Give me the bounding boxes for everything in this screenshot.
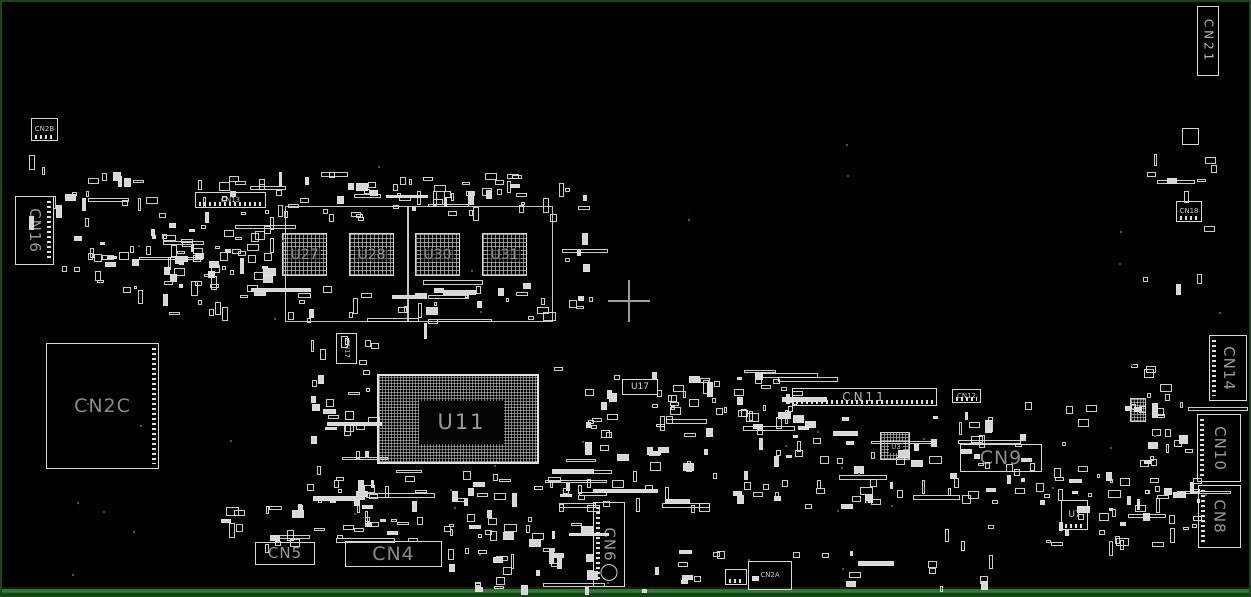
component-CN18[interactable]: CN18: [1176, 201, 1202, 222]
via-dot: [1120, 231, 1122, 233]
small-part: [842, 417, 849, 421]
small-part: [240, 295, 248, 298]
small-part: [833, 431, 858, 436]
component-label: CN8: [1212, 499, 1227, 533]
via-dot: [479, 554, 481, 556]
small-part: [299, 300, 305, 304]
board-edge-highlight: [2, 587, 1249, 595]
small-part: [215, 246, 220, 249]
small-part: [1211, 165, 1217, 173]
small-part: [467, 514, 475, 522]
component-CN14[interactable]: CN14: [1209, 335, 1247, 401]
small-part: [1169, 515, 1175, 524]
small-part: [269, 506, 282, 510]
small-part: [534, 486, 543, 490]
small-part: [193, 248, 203, 254]
small-part: [1192, 524, 1197, 528]
small-part: [587, 570, 594, 576]
small-part: [175, 256, 188, 262]
small-part: [986, 488, 996, 492]
small-part: [443, 290, 476, 295]
small-part: [275, 535, 310, 539]
small-part: [1180, 402, 1183, 408]
small-part: [1143, 277, 1148, 282]
small-part: [713, 473, 717, 479]
via-dot: [77, 502, 79, 504]
small-part: [670, 402, 679, 406]
small-part: [841, 504, 853, 509]
small-part: [576, 306, 584, 309]
small-part: [356, 451, 360, 459]
small-part: [565, 188, 570, 192]
component-CN12[interactable]: CN12: [952, 389, 981, 403]
small-part: [270, 217, 274, 230]
via-dot: [282, 240, 284, 242]
small-part: [476, 286, 481, 294]
small-part: [455, 498, 466, 502]
via-dot: [1154, 435, 1156, 437]
small-part: [744, 471, 748, 480]
small-part: [785, 410, 788, 424]
small-part: [275, 541, 281, 546]
small-part: [1152, 403, 1158, 418]
small-part: [234, 510, 245, 516]
small-part: [229, 523, 235, 538]
small-part: [786, 398, 793, 403]
small-part: [367, 318, 419, 322]
small-part: [29, 155, 35, 170]
small-part: [203, 197, 206, 208]
small-part: [371, 343, 379, 349]
small-part: [348, 183, 354, 190]
component-U31[interactable]: U31: [482, 233, 527, 276]
small-part: [219, 182, 230, 191]
small-part: [193, 255, 201, 262]
small-part: [465, 548, 469, 554]
small-part: [349, 312, 353, 318]
small-part: [1069, 479, 1082, 483]
small-part: [497, 189, 502, 195]
small-part: [358, 480, 364, 493]
pin-row: [1180, 216, 1198, 220]
small-part: [42, 167, 45, 175]
small-part: [583, 195, 587, 201]
via-dot: [138, 245, 140, 247]
small-part: [29, 216, 34, 230]
small-part: [230, 191, 236, 197]
small-part: [463, 471, 471, 480]
small-part: [409, 179, 412, 185]
small-part: [477, 301, 482, 308]
small-part: [543, 198, 549, 213]
small-part: [1148, 442, 1158, 449]
small-part: [318, 375, 324, 384]
component-CN2B[interactable]: CN2B: [31, 118, 58, 141]
small-part: [329, 172, 335, 178]
small-part: [559, 183, 564, 197]
small-part: [837, 458, 843, 464]
small-part: [516, 193, 527, 197]
component-CN2C[interactable]: CN2C: [46, 343, 159, 469]
small-part: [714, 381, 720, 387]
small-part: [169, 312, 180, 315]
small-part: [591, 425, 597, 429]
small-part: [408, 538, 418, 542]
via-dot: [891, 505, 893, 507]
small-part: [311, 436, 317, 444]
small-part: [1058, 489, 1063, 501]
small-part: [507, 181, 511, 193]
small-part: [122, 200, 128, 206]
via-dot: [274, 318, 276, 320]
small-part: [1156, 498, 1160, 513]
small-part: [666, 419, 707, 424]
via-dot: [133, 531, 135, 533]
small-part: [123, 287, 131, 293]
small-part: [134, 286, 137, 289]
small-part: [704, 449, 708, 455]
small-part: [1188, 407, 1248, 411]
component-core: U11: [419, 401, 504, 444]
small-part: [270, 535, 280, 541]
small-part: [230, 270, 234, 275]
small-part: [462, 182, 470, 185]
via-dot: [1119, 263, 1121, 265]
component-U11[interactable]: U11: [377, 374, 539, 464]
small-part: [931, 439, 937, 447]
small-part: [1127, 496, 1131, 505]
small-part: [523, 283, 531, 289]
small-part: [412, 206, 416, 211]
small-part: [582, 233, 588, 245]
small-part: [1109, 508, 1113, 511]
small-part: [221, 519, 231, 523]
small-part: [1150, 478, 1159, 483]
small-part: [1135, 505, 1146, 512]
component-label: CN2C: [74, 397, 131, 416]
small-part: [578, 495, 585, 500]
small-part: [978, 463, 984, 466]
small-part: [86, 191, 89, 197]
small-part: [392, 295, 421, 299]
small-part: [354, 528, 364, 532]
small-part: [1065, 529, 1069, 536]
small-part: [1147, 393, 1151, 398]
small-part: [543, 312, 556, 321]
mounting-hole: [601, 564, 618, 581]
small-part: [958, 440, 1021, 444]
small-part: [265, 544, 269, 553]
board-canvas[interactable]: CN21CN2BCN16CN13CN2CCN17U27U28U30U31U11U…: [0, 0, 1251, 597]
small-part: [468, 191, 474, 205]
small-part: [265, 210, 269, 214]
small-part: [724, 407, 727, 413]
small-part: [72, 192, 77, 196]
small-part: [682, 575, 693, 580]
small-part: [647, 447, 653, 455]
small-part: [792, 391, 803, 396]
small-part: [797, 441, 801, 452]
small-part: [1110, 479, 1113, 483]
small-part: [1086, 405, 1097, 412]
small-part: [1099, 513, 1109, 521]
small-part: [752, 576, 759, 581]
small-part: [251, 233, 259, 242]
small-part: [1072, 491, 1078, 494]
component-label: CN2A: [760, 572, 779, 579]
small-part: [988, 525, 994, 529]
component-label: U11: [437, 412, 485, 433]
small-part: [309, 309, 314, 318]
small-part: [132, 259, 139, 266]
small-part: [1184, 191, 1189, 203]
small-part: [1205, 157, 1216, 164]
small-part: [1030, 463, 1035, 471]
small-part: [1165, 394, 1170, 401]
small-part: [88, 253, 93, 260]
small-part: [482, 188, 492, 196]
small-part: [1078, 514, 1084, 520]
component-U17[interactable]: U17: [622, 379, 658, 395]
component-CN5[interactable]: CN5: [255, 542, 315, 565]
small-part: [418, 303, 422, 318]
small-part: [270, 238, 274, 253]
small-part: [526, 525, 530, 533]
small-part: [1143, 513, 1150, 521]
small-part: [198, 180, 202, 190]
small-part: [365, 517, 370, 522]
crosshair-cursor-v: [628, 280, 630, 322]
small-part: [559, 503, 596, 508]
component-conn-small-1: [725, 569, 747, 585]
small-part: [222, 307, 228, 321]
small-part: [475, 587, 483, 592]
component-U27[interactable]: U27: [282, 233, 327, 276]
small-part: [1197, 274, 1202, 284]
small-part: [235, 225, 296, 229]
small-part: [198, 300, 202, 305]
small-part: [504, 524, 517, 532]
small-part: [980, 576, 988, 584]
small-part: [124, 178, 131, 187]
component-CN16[interactable]: CN16: [15, 196, 54, 265]
small-part: [528, 316, 534, 320]
small-part: [1183, 527, 1189, 530]
small-part: [1036, 483, 1044, 492]
small-part: [614, 375, 620, 380]
via-dot: [103, 511, 105, 513]
small-part: [434, 302, 437, 306]
small-part: [581, 526, 593, 534]
small-part: [778, 377, 838, 382]
small-part: [684, 433, 696, 437]
small-part: [325, 427, 337, 430]
small-part: [559, 504, 564, 512]
small-part: [74, 267, 80, 272]
small-part: [928, 561, 937, 568]
component-label: U27: [288, 248, 320, 262]
small-part: [759, 438, 763, 450]
via-dot: [494, 465, 496, 467]
via-dot: [388, 547, 390, 549]
small-part: [326, 399, 334, 407]
small-part: [511, 554, 514, 569]
small-part: [88, 178, 99, 184]
small-part: [412, 501, 417, 512]
small-part: [519, 205, 524, 213]
small-part: [251, 288, 311, 292]
small-part: [566, 459, 596, 462]
small-part: [652, 372, 657, 380]
small-part: [477, 493, 488, 497]
small-part: [469, 525, 481, 529]
small-part: [82, 198, 86, 211]
small-part: [1150, 456, 1154, 461]
small-part: [152, 235, 156, 239]
small-part: [712, 398, 716, 403]
via-dot: [837, 510, 839, 512]
via-dot: [1205, 494, 1207, 496]
via-dot: [748, 559, 750, 561]
via-dot: [140, 425, 142, 427]
small-part: [948, 488, 951, 496]
small-part: [485, 530, 492, 535]
via-dot: [1131, 364, 1133, 366]
small-part: [365, 451, 369, 457]
small-part: [444, 526, 451, 532]
small-part: [248, 255, 256, 263]
small-part: [323, 286, 332, 293]
component-CN10[interactable]: CN10: [1197, 414, 1241, 482]
small-part: [805, 504, 812, 509]
small-part: [94, 254, 102, 262]
small-part: [709, 382, 713, 391]
via-dot: [842, 568, 844, 570]
small-part: [1164, 488, 1172, 495]
small-part: [753, 492, 763, 497]
small-part: [343, 525, 354, 530]
small-part: [1170, 528, 1175, 543]
small-part: [138, 290, 143, 304]
small-part: [138, 198, 141, 211]
small-part: [113, 172, 121, 181]
small-part: [448, 211, 457, 216]
small-part: [1176, 284, 1181, 295]
small-part: [683, 391, 686, 398]
small-part: [334, 480, 339, 488]
component-U28[interactable]: U28: [349, 233, 394, 276]
component-CN4[interactable]: CN4: [345, 541, 442, 567]
small-part: [512, 493, 517, 507]
small-part: [448, 549, 454, 560]
small-part: [578, 296, 584, 301]
small-part: [417, 517, 423, 525]
small-part: [589, 297, 593, 302]
small-part: [236, 524, 243, 532]
small-part: [929, 568, 936, 574]
small-part: [510, 184, 520, 188]
via-dot: [87, 403, 89, 405]
component-CN21[interactable]: CN21: [1197, 6, 1219, 76]
small-part: [366, 388, 370, 392]
small-part: [263, 275, 273, 283]
pin-row: [1200, 419, 1204, 477]
small-part: [356, 214, 363, 218]
small-part: [276, 190, 282, 196]
small-part: [1109, 541, 1113, 556]
small-part: [1088, 493, 1092, 497]
small-part: [852, 496, 861, 502]
pin-row: [956, 397, 977, 401]
small-part: [603, 501, 610, 507]
small-part: [1097, 474, 1100, 478]
small-part: [974, 454, 980, 459]
small-part: [342, 457, 388, 460]
component-U30[interactable]: U30: [415, 233, 460, 276]
small-part: [232, 249, 241, 254]
small-part: [1054, 468, 1061, 478]
small-part: [423, 177, 433, 181]
small-part: [1197, 179, 1206, 182]
pin-row: [729, 579, 743, 583]
small-part: [763, 405, 766, 411]
small-part: [1014, 469, 1020, 476]
via-dot: [1110, 447, 1112, 449]
small-part: [578, 206, 590, 210]
small-part: [146, 197, 158, 204]
small-part: [1020, 434, 1026, 441]
small-part: [858, 561, 894, 566]
small-part: [1140, 460, 1149, 467]
small-part: [1177, 491, 1231, 494]
small-part: [423, 280, 483, 285]
small-part: [1078, 466, 1088, 472]
small-part: [393, 184, 398, 191]
small-part: [1165, 429, 1171, 437]
small-part: [552, 469, 594, 474]
small-part: [387, 531, 398, 535]
small-part: [359, 360, 367, 365]
small-part: [1193, 516, 1202, 521]
via-dot: [471, 270, 473, 272]
small-part: [655, 567, 659, 575]
small-part: [1059, 522, 1063, 531]
small-part: [495, 180, 504, 185]
small-part: [465, 293, 468, 298]
small-part: [307, 484, 314, 491]
small-part: [793, 416, 804, 423]
small-part: [645, 485, 653, 493]
small-part: [164, 281, 173, 285]
small-part: [734, 389, 744, 396]
small-part: [1134, 407, 1142, 412]
small-part: [671, 406, 675, 410]
small-part: [1021, 458, 1032, 462]
small-part: [960, 449, 972, 454]
small-part: [541, 298, 545, 305]
small-part: [516, 292, 528, 296]
small-part: [400, 177, 406, 185]
via-dot: [847, 175, 849, 177]
small-part: [679, 550, 692, 554]
small-part: [1078, 419, 1089, 427]
small-part: [488, 518, 497, 525]
small-part: [706, 428, 713, 437]
small-part: [328, 415, 339, 419]
pin-row: [47, 201, 51, 260]
small-part: [284, 211, 288, 218]
small-part: [1193, 478, 1202, 484]
